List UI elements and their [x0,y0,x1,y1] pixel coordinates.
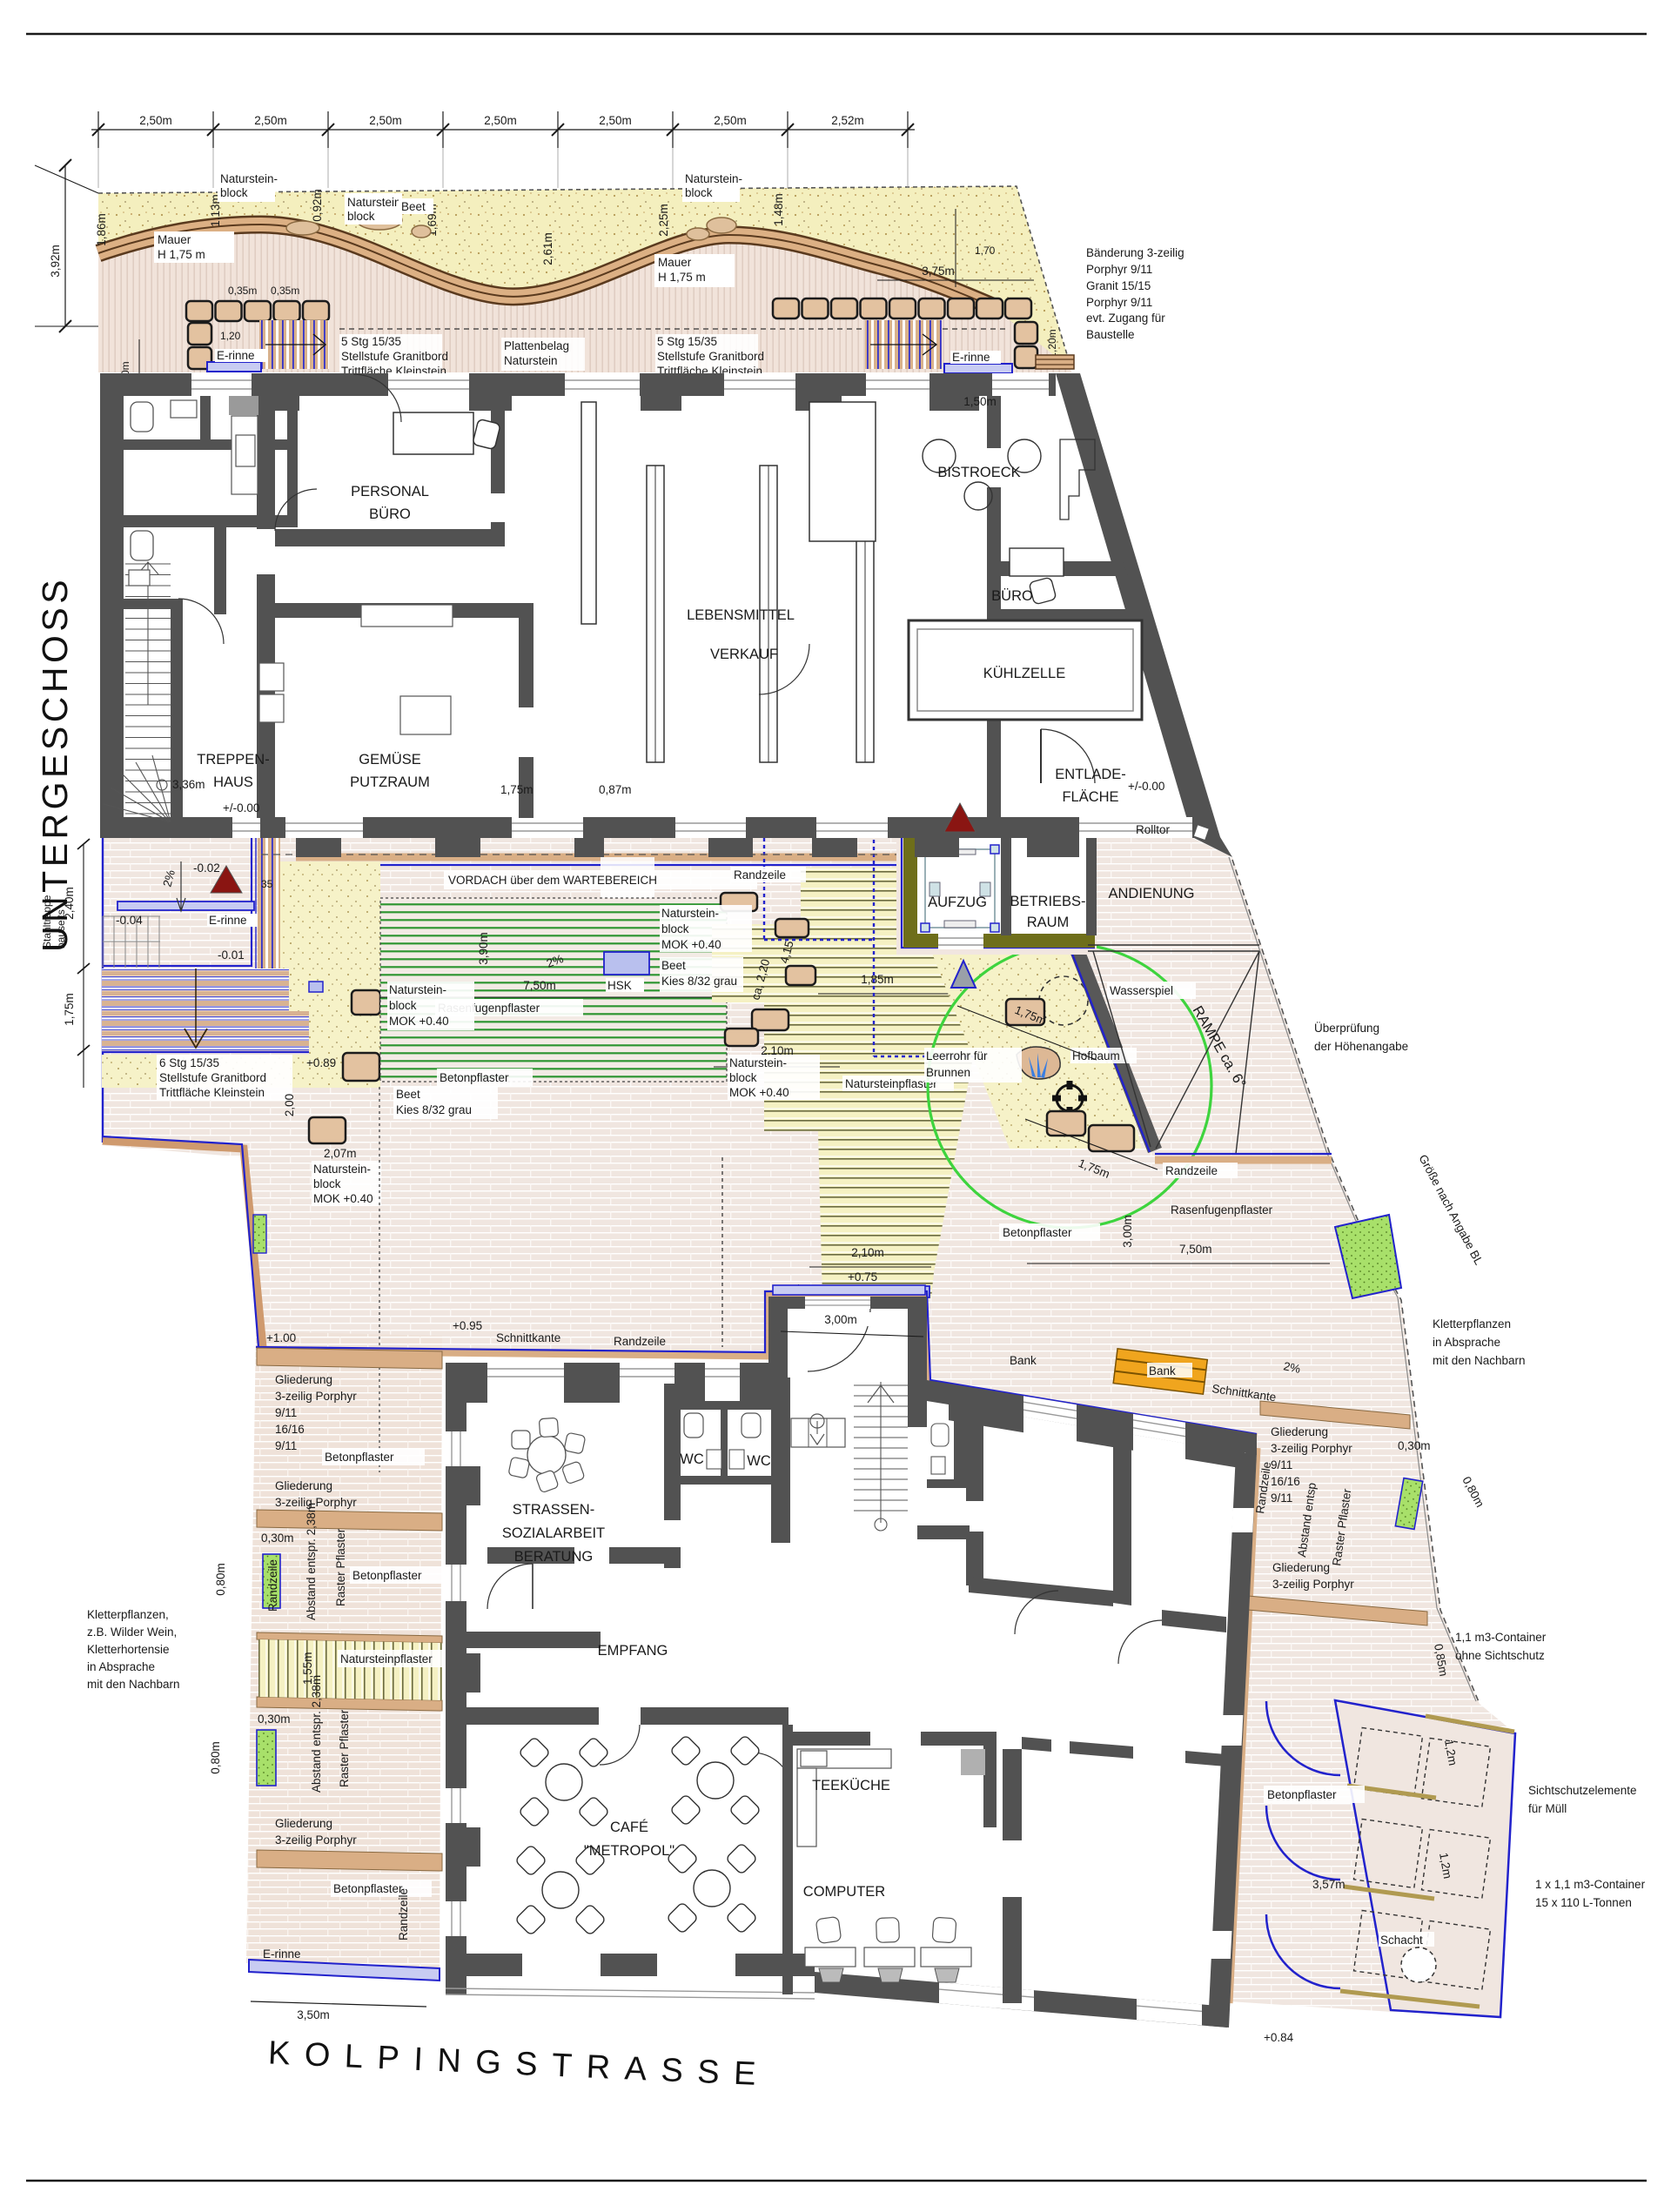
svg-text:Naturstein-: Naturstein- [313,1163,371,1176]
svg-text:Mauer: Mauer [658,256,692,269]
svg-text:TREPPEN-: TREPPEN- [197,752,269,767]
svg-text:2,10m: 2,10m [851,1246,884,1259]
svg-text:+1.00: +1.00 [266,1331,296,1344]
svg-text:Randzeile: Randzeile [734,868,786,881]
svg-text:block: block [729,1071,757,1084]
svg-text:E-rinne: E-rinne [217,349,255,362]
svg-text:Beet: Beet [401,200,426,213]
svg-text:H 1,75 m: H 1,75 m [658,271,706,284]
svg-text:der Höhenangabe: der Höhenangabe [1314,1040,1408,1053]
svg-text:1,20: 1,20 [220,330,241,342]
svg-text:Naturstein-: Naturstein- [729,1056,787,1069]
svg-text:Bänderung 3-zeilig: Bänderung 3-zeilig [1086,246,1184,259]
svg-text:BERATUNG: BERATUNG [514,1549,593,1565]
svg-text:MOK +0.40: MOK +0.40 [313,1192,373,1205]
svg-text:0,87m: 0,87m [599,783,632,796]
svg-text:Betonpflaster: Betonpflaster [1003,1226,1072,1239]
svg-text:Stellstufe Granitbord: Stellstufe Granitbord [159,1071,266,1084]
svg-text:CAFÉ: CAFÉ [610,1819,648,1835]
svg-text:Bank: Bank [1010,1354,1037,1367]
svg-text:BÜRO: BÜRO [369,506,411,522]
svg-text:2,50m: 2,50m [484,114,517,127]
svg-text:Raster Pflaster: Raster Pflaster [334,1528,347,1606]
svg-text:block: block [685,186,713,199]
svg-text:1,20m: 1,20m [1046,329,1058,358]
svg-text:Rasenfugenpflaster: Rasenfugenpflaster [1171,1203,1273,1217]
svg-text:Porphyr 9/11: Porphyr 9/11 [1086,296,1152,309]
svg-text:+0.84: +0.84 [1264,2031,1294,2044]
svg-text:1 x 1,1 m3-Container: 1 x 1,1 m3-Container [1535,1878,1646,1891]
svg-text:1,75m: 1,75m [500,783,534,796]
svg-text:35: 35 [261,878,273,890]
svg-text:0,35m: 0,35m [271,285,299,297]
svg-text:Gliederung: Gliederung [275,1817,332,1830]
svg-text:evt. Zugang für: evt. Zugang für [1086,312,1165,325]
svg-text:3,92m: 3,92m [49,245,62,278]
svg-text:9/11: 9/11 [1271,1458,1292,1471]
svg-text:Naturstein-: Naturstein- [389,983,446,996]
svg-text:LEBENSMITTEL: LEBENSMITTEL [687,607,795,623]
svg-text:block: block [220,186,248,199]
svg-text:block: block [313,1177,341,1190]
svg-text:Bank: Bank [1149,1364,1176,1377]
svg-text:Stellstufe Granitbord: Stellstufe Granitbord [657,350,764,363]
svg-text:2,52m: 2,52m [831,114,864,127]
svg-text:1,85m: 1,85m [861,973,894,986]
svg-text:3,57m: 3,57m [1312,1878,1346,1891]
svg-text:mit den Nachbarn: mit den Nachbarn [1433,1354,1526,1367]
svg-text:2,50m: 2,50m [369,114,402,127]
svg-text:Betonpflaster: Betonpflaster [333,1882,403,1895]
svg-text:2,25m: 2,25m [657,204,670,237]
svg-text:7,50m: 7,50m [523,979,556,992]
svg-text:Schacht: Schacht [1380,1934,1423,1947]
svg-text:Kletterpflanzen,: Kletterpflanzen, [87,1608,169,1621]
svg-text:6 Stg 15/35: 6 Stg 15/35 [159,1056,219,1069]
svg-text:FLÄCHE: FLÄCHE [1062,789,1118,805]
svg-text:Naturstein-: Naturstein- [347,196,405,209]
svg-text:VERKAUF: VERKAUF [710,647,778,662]
svg-text:MOK +0.40: MOK +0.40 [661,938,721,951]
svg-text:PUTZRAUM: PUTZRAUM [350,774,430,790]
svg-text:Abstand entspr. 2,38m: Abstand entspr. 2,38m [305,1503,318,1620]
svg-text:16/16: 16/16 [275,1423,305,1436]
svg-text:3-zeilig Porphyr: 3-zeilig Porphyr [1271,1442,1352,1455]
svg-text:block: block [389,999,417,1012]
svg-text:GEMÜSE: GEMÜSE [359,752,421,767]
svg-text:Betonpflaster: Betonpflaster [440,1071,509,1084]
svg-text:9/11: 9/11 [275,1439,297,1452]
svg-text:TEEKÜCHE: TEEKÜCHE [812,1778,890,1793]
svg-text:Gliederung: Gliederung [275,1373,332,1386]
svg-text:1,86m: 1,86m [95,213,108,246]
svg-text:Granit 15/15: Granit 15/15 [1086,279,1151,292]
svg-text:-0.04: -0.04 [116,914,143,927]
svg-text:1,48m: 1,48m [772,193,785,226]
svg-text:Trittfläche Kleinstein: Trittfläche Kleinstein [159,1086,265,1099]
svg-text:3,36m: 3,36m [172,778,205,791]
svg-text:Kies 8/32 grau: Kies 8/32 grau [396,1103,472,1116]
svg-text:+0.75: +0.75 [848,1270,877,1284]
svg-text:H 1,75 m: H 1,75 m [158,248,205,261]
svg-text:block: block [347,210,375,223]
svg-text:Brunnen: Brunnen [926,1066,970,1079]
svg-text:16/16: 16/16 [1271,1475,1300,1488]
svg-text:z.B. Wilder Wein,: z.B. Wilder Wein, [87,1625,177,1639]
svg-text:9/11: 9/11 [275,1406,297,1419]
svg-text:Randzeile: Randzeile [397,1888,410,1941]
svg-text:Betonpflaster: Betonpflaster [352,1569,422,1582]
svg-text:BISTROECK: BISTROECK [937,465,1020,480]
svg-text:RAUM: RAUM [1027,915,1070,930]
svg-text:2,50m: 2,50m [599,114,632,127]
svg-text:Wasserspiel: Wasserspiel [1110,984,1173,997]
svg-text:1,50m: 1,50m [963,395,997,408]
svg-text:ENTLADE-: ENTLADE- [1055,767,1126,782]
svg-text:3-zeilig Porphyr: 3-zeilig Porphyr [275,1390,357,1403]
svg-text:BETRIEBS-: BETRIEBS- [1010,894,1085,909]
svg-text:3,75m: 3,75m [922,265,955,278]
svg-text:WC: WC [747,1453,771,1469]
svg-text:3-zeilig Porphyr: 3-zeilig Porphyr [275,1833,357,1847]
svg-text:Gliederung: Gliederung [275,1479,332,1492]
svg-text:Natursteinpflaster: Natursteinpflaster [845,1077,937,1090]
svg-text:Kies 8/32 grau: Kies 8/32 grau [661,975,737,988]
svg-text:2,50m: 2,50m [254,114,287,127]
svg-text:9/11: 9/11 [1271,1491,1292,1505]
svg-text:SOZIALARBEIT: SOZIALARBEIT [502,1525,605,1541]
svg-text:"METROPOL": "METROPOL" [584,1843,674,1859]
svg-text:KÜHLZELLE: KÜHLZELLE [983,666,1065,681]
svg-text:5 Stg 15/35: 5 Stg 15/35 [341,335,401,348]
svg-text:BÜRO: BÜRO [991,588,1033,604]
svg-text:ohne Sichtschutz: ohne Sichtschutz [1455,1649,1545,1662]
svg-text:0,92m: 0,92m [311,189,324,222]
svg-text:Rolltor: Rolltor [1136,823,1171,836]
svg-text:3,50m: 3,50m [297,2008,330,2021]
svg-text:Beet: Beet [396,1088,420,1101]
svg-text:Naturstein: Naturstein [504,354,558,367]
svg-text:2,61m: 2,61m [541,232,554,265]
svg-text:COMPUTER: COMPUTER [803,1884,886,1900]
svg-text:2,50m: 2,50m [139,114,172,127]
svg-text:0,35m: 0,35m [228,285,257,297]
svg-text:Naturstein-: Naturstein- [220,172,278,185]
svg-text:-0.01: -0.01 [218,948,245,962]
svg-text:3,00m: 3,00m [824,1313,857,1326]
svg-text:VORDACH über dem WARTEBEREICH: VORDACH über dem WARTEBEREICH [448,874,657,887]
svg-text:MOK +0.40: MOK +0.40 [729,1086,789,1099]
svg-text:ANDIENUNG: ANDIENUNG [1108,886,1194,902]
svg-text:Schnittkante: Schnittkante [496,1331,560,1344]
svg-text:Naturstein-: Naturstein- [661,907,719,920]
svg-text:Naturstein-: Naturstein- [685,172,742,185]
svg-text:Betonpflaster: Betonpflaster [325,1451,394,1464]
svg-text:1,70: 1,70 [975,245,996,257]
svg-text:0,30m: 0,30m [1398,1439,1431,1452]
svg-text:Randzeile: Randzeile [1165,1164,1218,1177]
svg-text:Kletterhortensie: Kletterhortensie [87,1643,170,1656]
svg-text:EMPFANG: EMPFANG [598,1643,668,1659]
svg-text:Porphyr 9/11: Porphyr 9/11 [1086,263,1152,276]
svg-text:0,30m: 0,30m [258,1713,291,1726]
svg-text:+0.89: +0.89 [306,1056,336,1069]
svg-text:+/-0.00: +/-0.00 [223,801,259,814]
svg-text:Baustelle: Baustelle [1086,328,1135,341]
svg-text:E-rinne: E-rinne [209,914,247,927]
svg-text:-0.02: -0.02 [193,861,220,875]
svg-text:Sichtschutzelemente: Sichtschutzelemente [1528,1784,1637,1797]
svg-text:Kletterpflanzen: Kletterpflanzen [1433,1317,1511,1331]
svg-text:+/-0.00: +/-0.00 [1128,780,1164,793]
svg-text:Abstand entspr. 2,38m: Abstand entspr. 2,38m [310,1675,323,1793]
svg-text:Raster Pflaster: Raster Pflaster [338,1709,351,1787]
svg-text:3-zeilig Porphyr: 3-zeilig Porphyr [1272,1578,1354,1591]
svg-text:Leerrohr für: Leerrohr für [926,1049,988,1062]
svg-text:HAUS: HAUS [213,774,253,790]
svg-text:3,00m: 3,00m [1121,1215,1134,1248]
svg-text:Randzeile: Randzeile [614,1335,666,1348]
svg-text:MOK +0.40: MOK +0.40 [389,1015,449,1028]
svg-text:0,30m: 0,30m [261,1532,294,1545]
svg-text:für Müll: für Müll [1528,1802,1567,1815]
svg-text:1,1 m3-Container: 1,1 m3-Container [1455,1631,1547,1644]
svg-text:HSK: HSK [607,979,632,992]
svg-text:7,50m: 7,50m [1179,1243,1212,1256]
svg-text:AUFZUG: AUFZUG [928,895,987,910]
svg-text:Mauer: Mauer [158,233,191,246]
svg-text:UNTERGESCHOSS: UNTERGESCHOSS [35,576,75,952]
svg-text:Gliederung: Gliederung [1272,1561,1330,1574]
svg-text:2,07m: 2,07m [324,1147,357,1160]
svg-text:STRASSEN-: STRASSEN- [513,1502,594,1518]
svg-text:0,80m: 0,80m [214,1563,227,1596]
svg-text:Beet: Beet [661,959,686,972]
svg-text:1,75m: 1,75m [63,993,76,1026]
svg-text:Betonpflaster: Betonpflaster [1267,1788,1337,1801]
svg-text:in Absprache: in Absprache [1433,1336,1500,1349]
svg-text:Stellstufe Granitbord: Stellstufe Granitbord [341,350,448,363]
svg-text:15 x 110 L-Tonnen: 15 x 110 L-Tonnen [1535,1896,1632,1909]
svg-text:Gliederung: Gliederung [1271,1425,1328,1438]
svg-text:5 Stg 15/35: 5 Stg 15/35 [657,335,717,348]
svg-text:mit den Nachbarn: mit den Nachbarn [87,1678,180,1691]
svg-text:Randzeile: Randzeile [266,1559,279,1612]
svg-text:Plattenbelag: Plattenbelag [504,339,569,352]
svg-text:+0.95: +0.95 [453,1319,482,1332]
svg-text:3,90m: 3,90m [477,932,490,965]
svg-text:Überprüfung: Überprüfung [1314,1022,1379,1035]
svg-text:E-rinne: E-rinne [263,1947,301,1961]
svg-text:block: block [661,922,689,935]
svg-text:in Absprache: in Absprache [87,1660,155,1673]
svg-text:0,80m: 0,80m [209,1741,222,1774]
svg-text:2,50m: 2,50m [714,114,747,127]
svg-text:2,00: 2,00 [283,1094,296,1116]
svg-text:Natursteinpflaster: Natursteinpflaster [340,1652,433,1666]
svg-text:PERSONAL: PERSONAL [351,484,429,499]
svg-text:WC: WC [680,1451,704,1467]
svg-text:Hofbaum: Hofbaum [1072,1049,1120,1062]
svg-text:E-rinne: E-rinne [952,351,990,364]
